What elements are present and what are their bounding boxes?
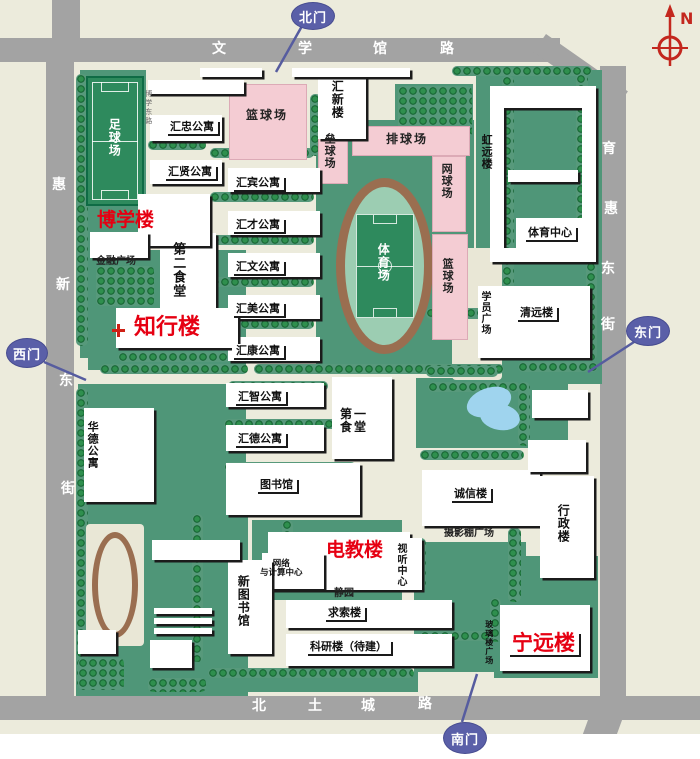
clinic-cross-icon (112, 324, 125, 337)
area-label: 静园 (334, 588, 354, 599)
south-gate-balloon: 南门 (443, 722, 487, 754)
building-name-vertical: 行政楼 (556, 504, 569, 543)
compass-north-label: N (680, 9, 693, 28)
highlight-label: 知行楼 (134, 316, 200, 340)
west-gate-balloon: 西门 (6, 338, 48, 368)
court-label: 垒球场 (323, 133, 335, 169)
highlight-label: 博学楼 (97, 210, 154, 231)
building (90, 232, 148, 258)
building-name-plate: 汇美公寓 (232, 302, 284, 316)
building-name-vertical: 华德公寓 (86, 421, 98, 469)
compass-arrowhead (665, 4, 675, 17)
court-label: 网球场 (440, 163, 452, 199)
road-name-char: 馆 (373, 42, 387, 57)
building-name-vertical: 新图书馆 (236, 575, 249, 627)
east-gate-balloon: 东门 (626, 316, 670, 346)
building-name-small: 网络 与计算中心 (260, 560, 303, 579)
road-segment (0, 696, 700, 720)
building (148, 80, 244, 94)
building-name-plate: 科研楼（待建） (306, 640, 391, 654)
road-name-char: 东 (601, 262, 615, 277)
building (528, 440, 586, 472)
tree-cluster (78, 658, 124, 690)
building (292, 68, 410, 77)
area-label: 金融广场 (96, 256, 136, 267)
tree-column (192, 514, 203, 662)
building (478, 286, 590, 358)
tree-row (210, 192, 314, 202)
building-name-plate: 汇文公寓 (232, 260, 284, 274)
pitch-goalbox-top (101, 82, 129, 92)
building-name-plate: 图书馆 (256, 478, 297, 492)
tree-row (210, 277, 314, 287)
court-label: 排球场 (386, 133, 428, 146)
road-name-char: 文 (212, 42, 226, 57)
building-name-plate: 汇康公寓 (232, 344, 284, 358)
building-name-plate: 求索楼 (324, 606, 365, 620)
tree-row (148, 678, 206, 692)
pitch-goalbox-bottom (101, 190, 129, 200)
building-name-vertical: 学员广场 (479, 291, 490, 335)
road-name-char: 北 (252, 699, 266, 714)
tree-row (452, 66, 592, 76)
building-name-plate: 汇智公寓 (234, 390, 286, 404)
building-name-plate: 汇忠公寓 (166, 120, 218, 134)
tree-row (210, 235, 314, 245)
tree-row (208, 668, 414, 678)
road-name-char: 新 (56, 278, 70, 293)
tree-column (518, 382, 530, 446)
page-margin (0, 734, 700, 759)
building-name-plate: 汇才公寓 (232, 218, 284, 232)
building (200, 68, 262, 77)
field-label: 体育场 (376, 243, 389, 282)
road-segment (46, 42, 74, 698)
practice-track (92, 532, 138, 638)
road-name-char: 路 (418, 697, 432, 712)
building-name-vertical: 第二食堂 (170, 242, 184, 298)
building (490, 86, 596, 108)
building-name-plate: 汇宾公寓 (232, 176, 284, 190)
court-label: 篮球场 (246, 109, 288, 122)
road-name-char: 土 (308, 699, 322, 714)
road-name-char: 学 (298, 42, 312, 57)
tree-row (420, 450, 524, 460)
road-name-char: 惠 (604, 202, 618, 217)
court-label: 篮球场 (441, 258, 453, 294)
road-name-char: 城 (361, 699, 375, 714)
stadium-goalbox-top (373, 215, 397, 224)
compass-rose: N (645, 2, 700, 77)
area-label: 摄影棚广场 (444, 528, 494, 539)
building-name-plate: 汇德公寓 (234, 432, 286, 446)
building (150, 640, 192, 668)
building-name: 第一 食堂 (340, 408, 368, 434)
campus-map: N 汇忠公寓汇贤公寓汇宾公寓汇才公寓汇文公寓汇美公寓汇康公寓汇智公寓汇德公寓图书… (0, 0, 700, 759)
building (154, 608, 212, 614)
stadium-goalbox-bottom (373, 308, 397, 317)
building (532, 390, 588, 418)
field-label: 足球场 (107, 118, 120, 157)
road-name-char: 路 (440, 42, 454, 57)
road-segment (52, 0, 80, 44)
road-segment (0, 38, 560, 62)
road-name-char: 街 (601, 318, 615, 333)
tree-row (518, 362, 598, 372)
building (154, 628, 212, 634)
building-name-plate: 清远楼 (516, 306, 557, 320)
building (286, 600, 452, 628)
road-name-char: 东 (59, 374, 73, 389)
tree-row (426, 366, 498, 377)
building-name-vertical: 虹远楼 (480, 134, 492, 170)
building (154, 618, 212, 624)
road-segment (600, 66, 626, 700)
highlight-building-plate: 宁远楼 (508, 632, 579, 655)
road-name-char: 街 (61, 482, 75, 497)
building (78, 630, 116, 654)
tree-cluster (96, 266, 154, 306)
building-name-vertical: 玻璃楼广场 (484, 620, 493, 665)
building (490, 248, 596, 262)
building (508, 170, 578, 182)
road-name-char: 育 (602, 142, 616, 157)
building-name-vertical: 汇新楼 (330, 80, 343, 119)
north-gate-balloon: 北门 (291, 2, 335, 30)
building (582, 108, 596, 248)
road-name-char: 惠 (52, 178, 66, 193)
tree-row (100, 364, 248, 374)
building-name-plate: 诚信楼 (450, 487, 491, 501)
tree-column (508, 528, 521, 602)
building-name-plate: 体育中心 (524, 226, 576, 240)
building (490, 108, 504, 248)
tree-row (148, 140, 206, 150)
building-name-vertical: 视听中心 (395, 543, 406, 587)
highlight-label: 电教楼 (326, 540, 383, 561)
inner-road-label: 博学东路 (144, 90, 152, 126)
building-name-plate: 汇贤公寓 (164, 165, 216, 179)
building (152, 540, 240, 560)
